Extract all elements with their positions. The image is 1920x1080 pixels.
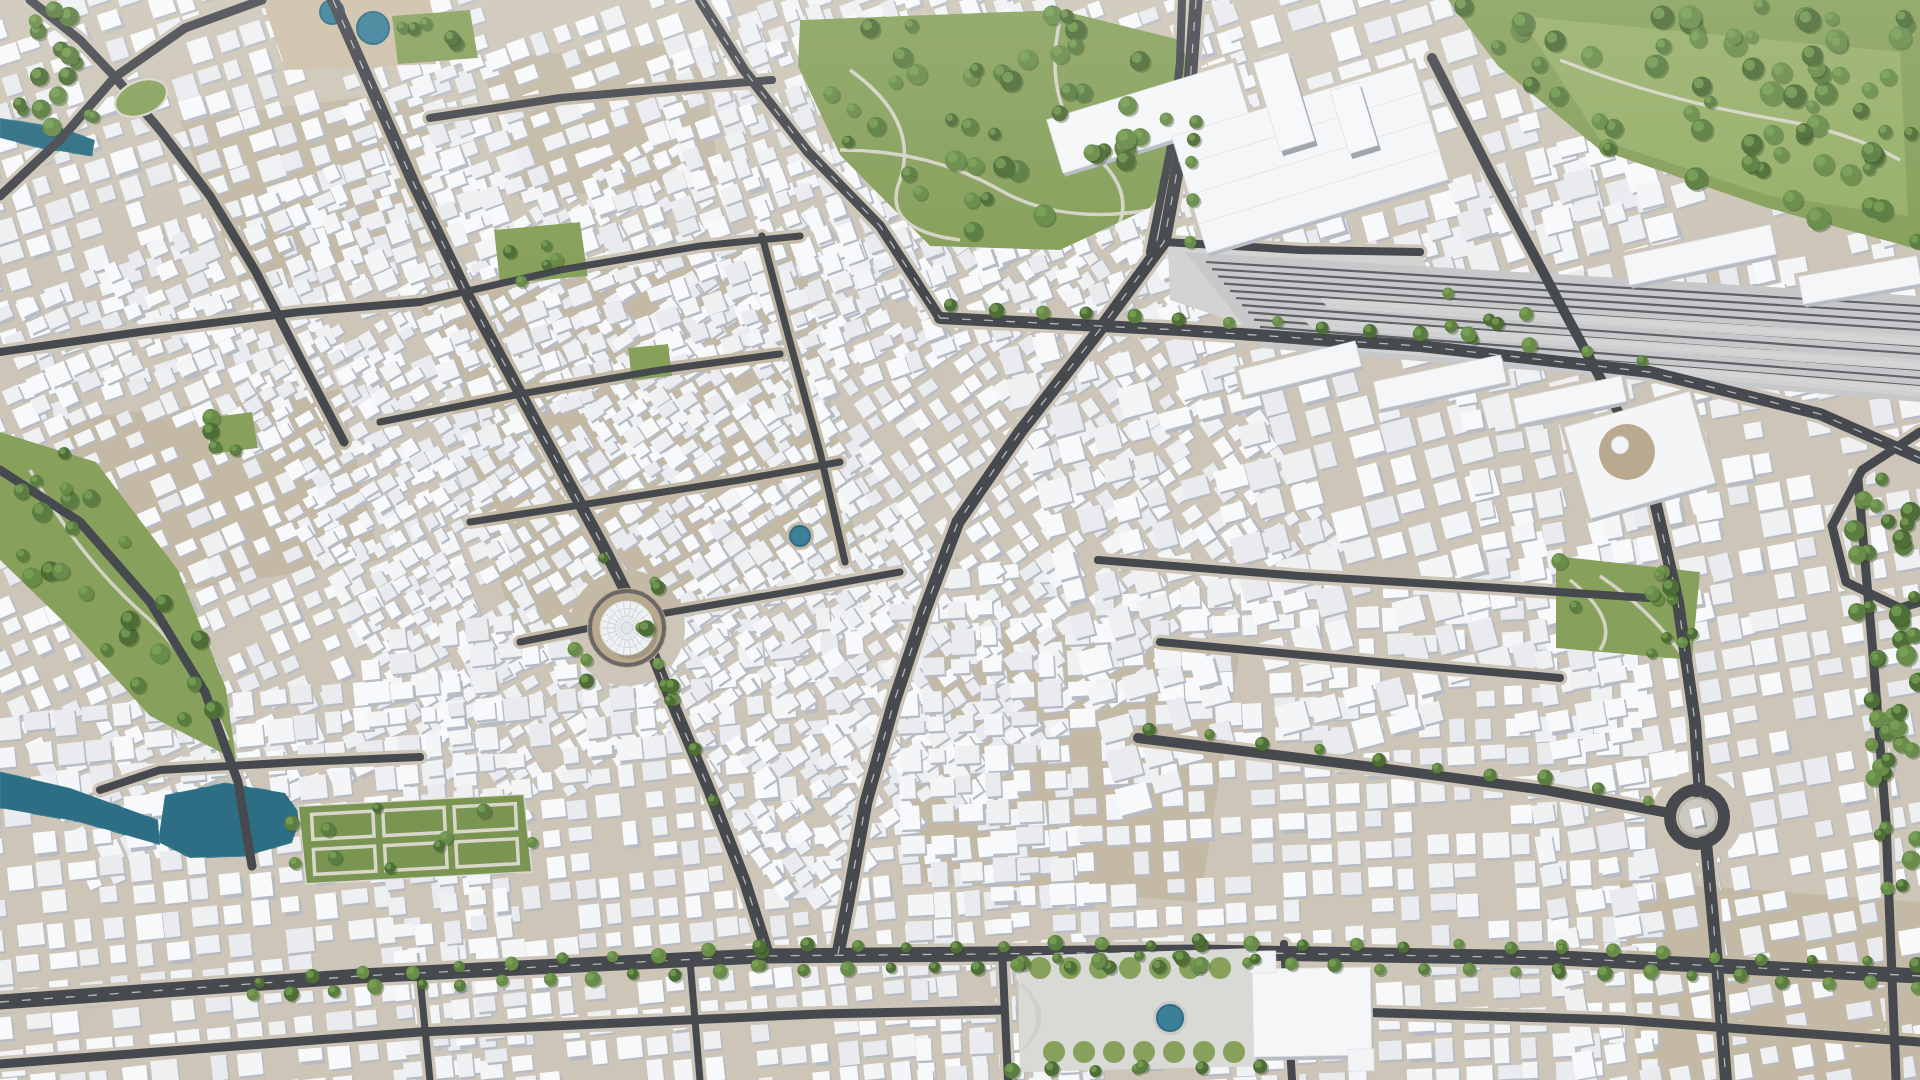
- city-map-render: [0, 0, 1920, 1080]
- city-3d-scene: [0, 0, 1920, 1080]
